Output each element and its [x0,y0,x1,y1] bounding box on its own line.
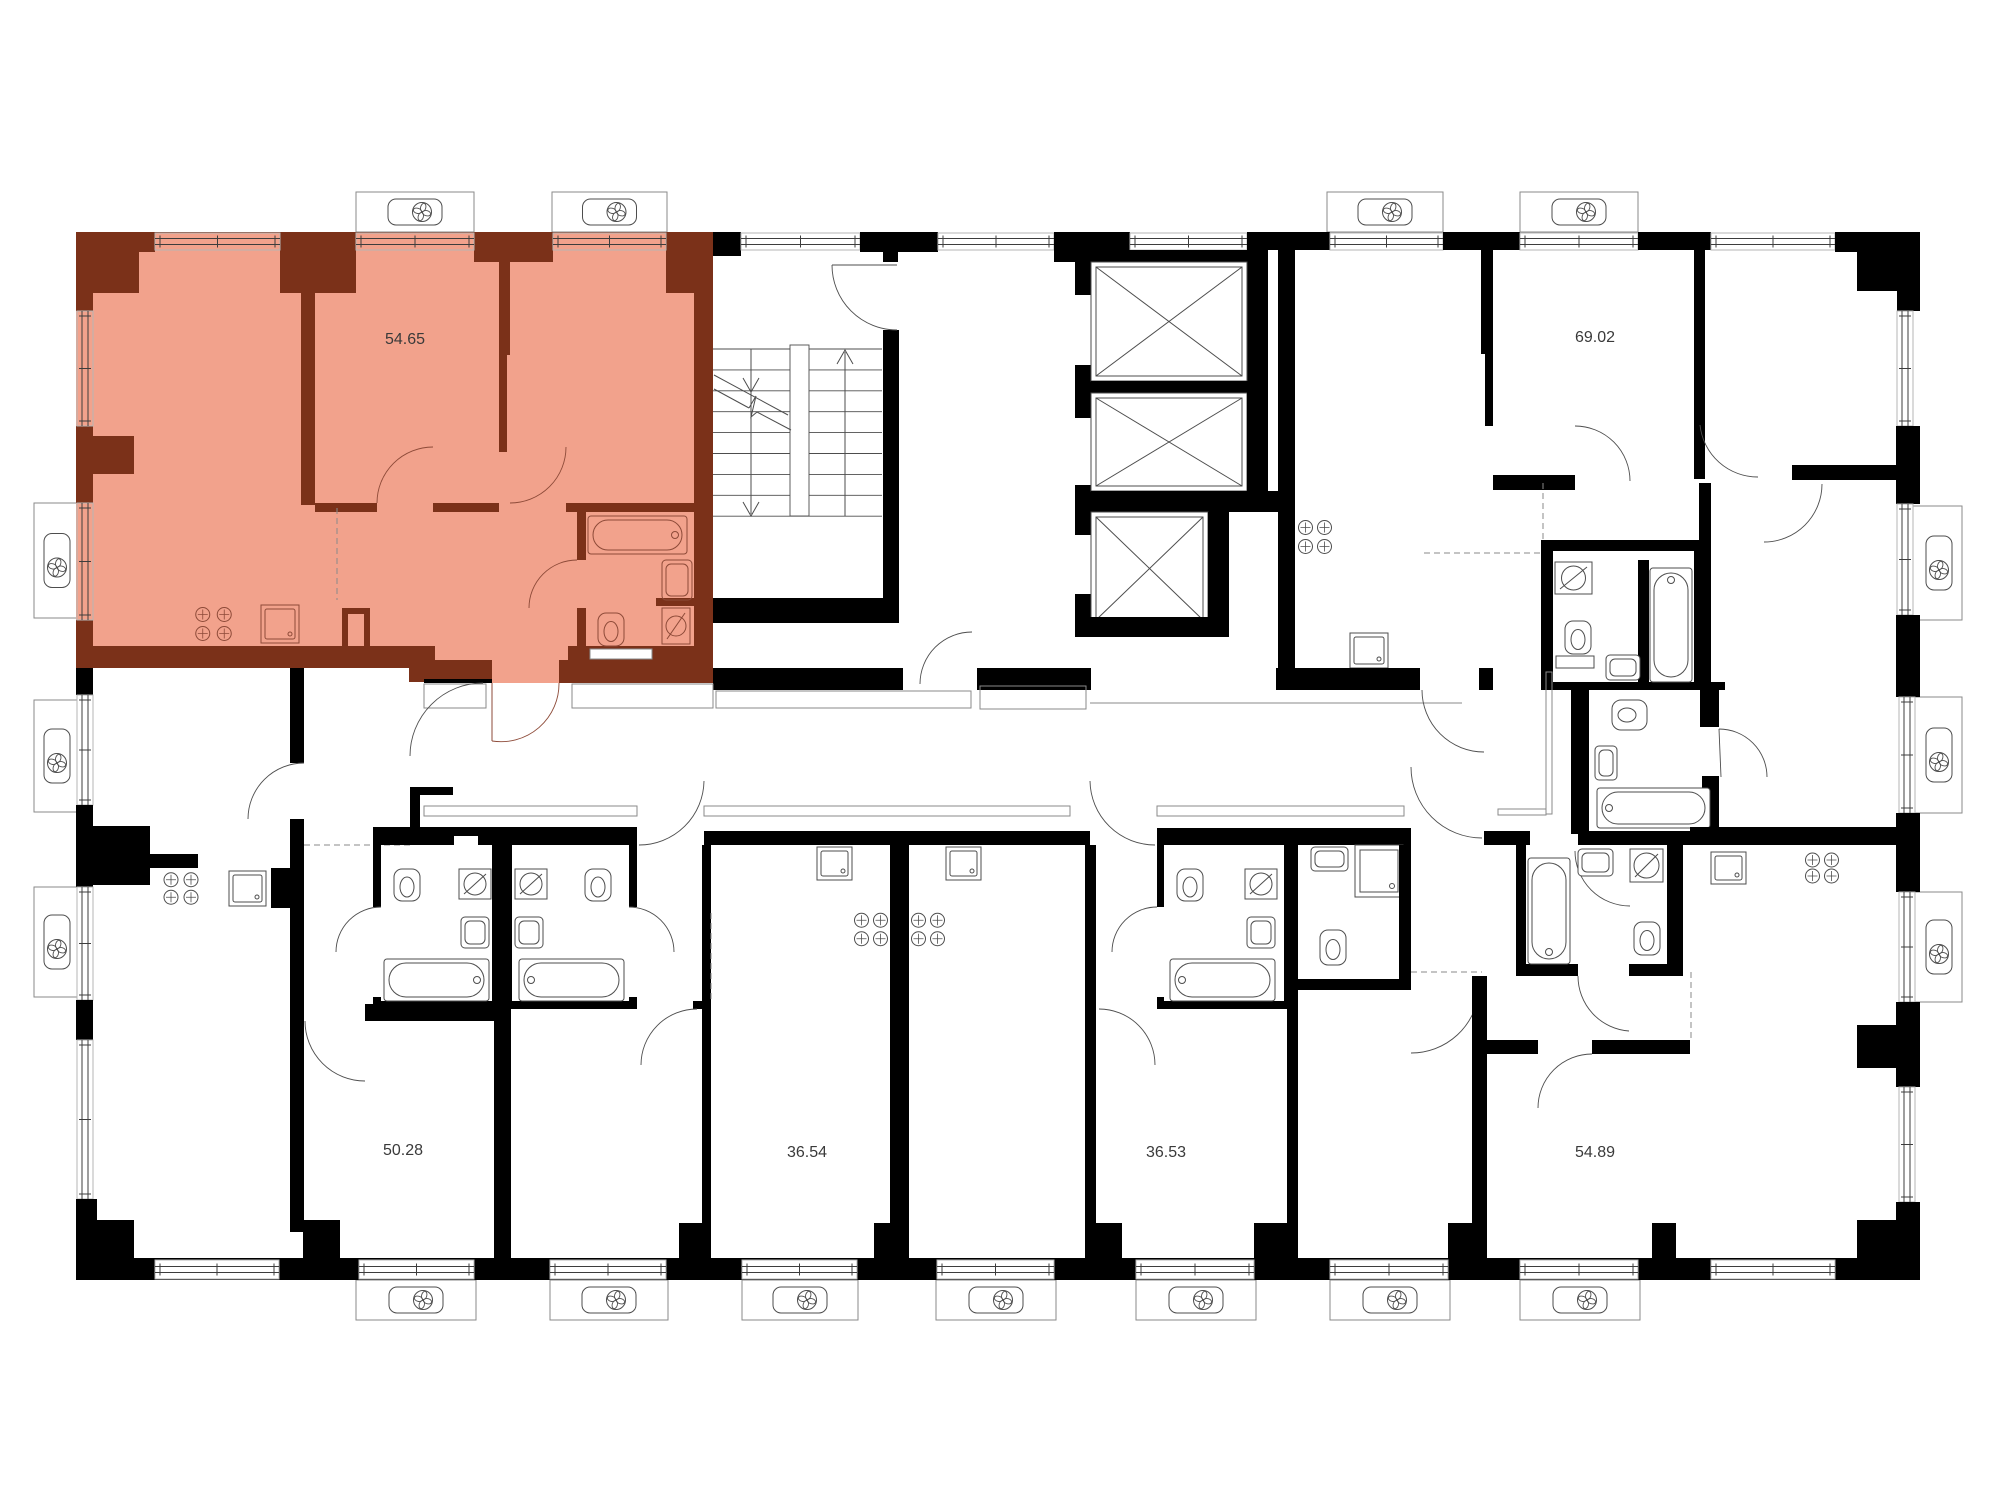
svg-text:69.02: 69.02 [1575,329,1615,346]
svg-text:36.54: 36.54 [787,1144,827,1161]
svg-text:50.28: 50.28 [383,1142,423,1159]
svg-text:54.65: 54.65 [385,331,425,348]
svg-text:36.53: 36.53 [1146,1144,1186,1161]
svg-text:54.89: 54.89 [1575,1144,1615,1161]
